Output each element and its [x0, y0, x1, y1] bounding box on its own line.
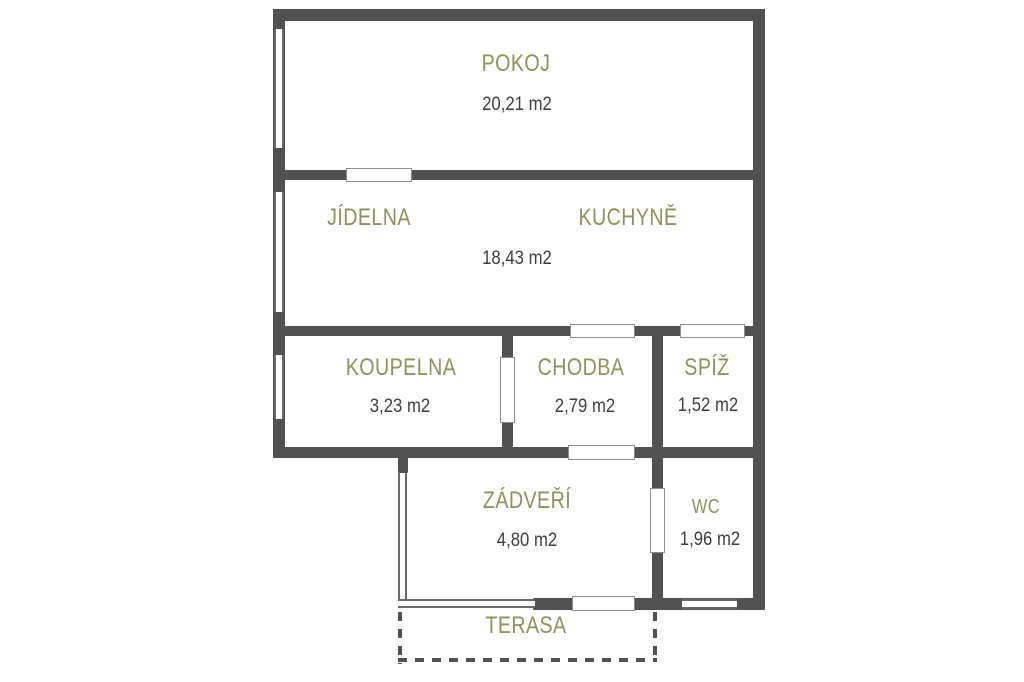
room-label-text: CHODBA [538, 356, 625, 380]
door-pokoj [346, 168, 412, 182]
wall-exterior-right [753, 9, 765, 610]
room-label-kuchyne: KUCHYNĚ [568, 206, 689, 230]
room-label-zadveri: ZÁDVEŘÍ [473, 489, 581, 513]
room-label-text: KUCHYNĚ [578, 206, 677, 230]
room-label-text: TERASA [485, 614, 566, 638]
floor-plan: POKOJ 20,21 m2 JÍDELNA KUCHYNĚ 18,43 m2 … [0, 0, 1024, 682]
room-label-pokoj: POKOJ [474, 52, 558, 76]
room-area-text: 2,79 m2 [555, 397, 615, 416]
window-jidelna-left [274, 192, 284, 312]
room-area-text: 1,52 m2 [678, 396, 738, 415]
wall-exterior-top [273, 9, 765, 21]
room-area-text: 4,80 m2 [497, 531, 557, 550]
door-zadveri-top [568, 445, 635, 460]
door-koupelna [500, 357, 515, 423]
terrace-dash-left [398, 612, 402, 664]
room-label-text: JÍDELNA [327, 206, 411, 230]
room-area-text: 20,21 m2 [482, 95, 552, 114]
wall-chodba-spiz [652, 326, 663, 447]
terrace-dash-right [653, 612, 657, 660]
room-area-text: 3,23 m2 [370, 397, 430, 416]
room-label-chodba: CHODBA [528, 356, 634, 380]
room-label-text: ZÁDVEŘÍ [483, 489, 571, 513]
window-koupelna-left [274, 355, 284, 419]
room-area-text: 18,43 m2 [482, 249, 552, 268]
room-label-text: POKOJ [482, 52, 551, 76]
room-area-spiz: 1,52 m2 [674, 396, 743, 415]
room-area-jidelna-kuchyne: 18,43 m2 [477, 249, 556, 268]
room-label-text: KOUPELNA [346, 356, 456, 380]
room-area-zadveri: 4,80 m2 [493, 531, 562, 550]
room-label-wc: WC [689, 497, 723, 517]
room-label-koupelna: KOUPELNA [334, 356, 469, 380]
terrace-dash-bottom [398, 658, 657, 662]
room-area-koupelna: 3,23 m2 [366, 397, 435, 416]
room-label-terasa: TERASA [476, 614, 575, 638]
room-area-chodba: 2,79 m2 [551, 397, 620, 416]
room-label-text: SPÍŽ [684, 356, 729, 380]
room-area-pokoj: 20,21 m2 [477, 95, 556, 114]
door-wc [650, 488, 665, 553]
window-pokoj-left [274, 29, 284, 148]
door-zadveri-bottom [572, 596, 635, 611]
window-zadveri-bottom [398, 599, 535, 608]
wall-bottomrow-entry [273, 447, 765, 458]
window-zadveri-left [398, 473, 407, 600]
door-chodba-top [570, 324, 635, 338]
room-label-spiz: SPÍŽ [679, 356, 734, 380]
door-spiz [680, 324, 745, 338]
room-label-text: WC [692, 497, 720, 517]
wall-zadveri-left-stub [398, 453, 408, 473]
room-area-text: 1,96 m2 [680, 530, 740, 549]
window-wc-bottom [682, 599, 737, 609]
room-label-jidelna: JÍDELNA [318, 206, 420, 230]
room-area-wc: 1,96 m2 [676, 530, 745, 549]
